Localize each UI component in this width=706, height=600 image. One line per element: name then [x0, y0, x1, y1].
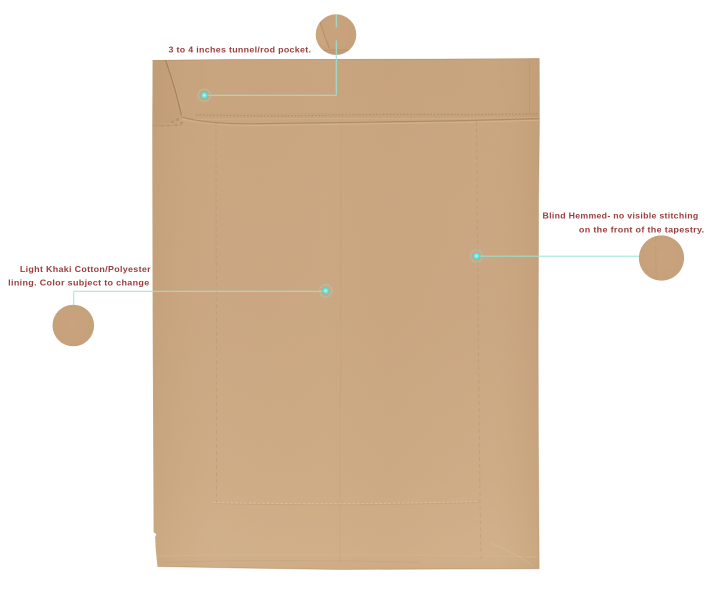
svg-text:Light Khaki Cotton/Polyester: Light Khaki Cotton/Polyester [20, 264, 151, 274]
svg-text:3 to 4 inches tunnel/rod pocke: 3 to 4 inches tunnel/rod pocket. [169, 45, 312, 55]
svg-text:on the front of the tapestry.: on the front of the tapestry. [579, 224, 705, 234]
svg-text:Blind Hemmed- no visible stitc: Blind Hemmed- no visible stitching [543, 211, 699, 221]
svg-text:lining. Color subject to chang: lining. Color subject to change [8, 277, 149, 287]
